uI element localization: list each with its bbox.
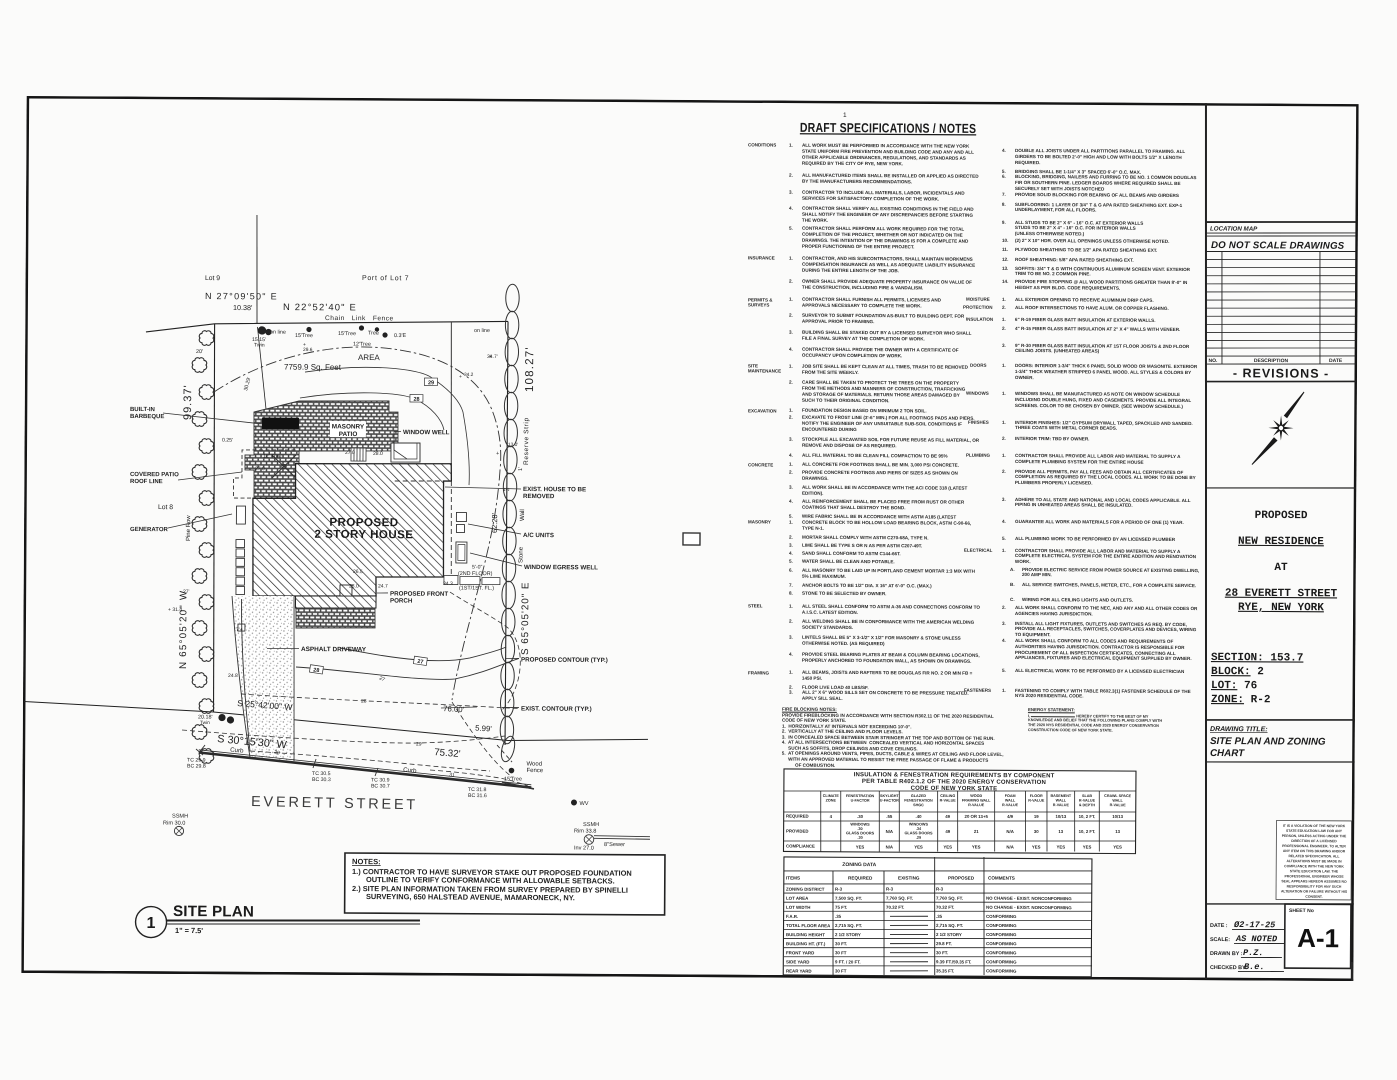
svg-text:30 FT.: 30 FT.: [936, 950, 948, 955]
svg-text:15'Tree: 15'Tree: [295, 333, 313, 339]
svg-text:28 EVERETT STREET: 28 EVERETT STREET: [1225, 588, 1338, 601]
svg-text:R-VALUE: R-VALUE: [968, 803, 985, 807]
svg-text:27: 27: [417, 659, 424, 666]
svg-text:MASONRY: MASONRY: [332, 423, 365, 430]
svg-text:27.0: 27.0: [255, 466, 265, 472]
svg-text:Twin: Twin: [254, 343, 265, 349]
svg-text:CHECKED BY:: CHECKED BY:: [1210, 965, 1247, 971]
svg-text:R-VALUE: R-VALUE: [1110, 803, 1127, 807]
svg-text:2 STORY HOUSE: 2 STORY HOUSE: [314, 529, 413, 542]
svg-text:EXISTING: EXISTING: [898, 875, 920, 880]
svg-text:NO CHANGE - EXIST. NONCONFORMI: NO CHANGE - EXIST. NONCONFORMING: [986, 905, 1072, 911]
svg-text:9 FT. / 20 FT.: 9 FT. / 20 FT.: [835, 959, 861, 964]
svg-text:BUILDING HT. (FT.): BUILDING HT. (FT.): [786, 941, 826, 946]
svg-text:CLIMATE: CLIMATE: [823, 794, 840, 798]
svg-text:U-FACTOR: U-FACTOR: [851, 799, 870, 803]
svg-text:+: +: [459, 374, 462, 380]
svg-text:R-VALUE: R-VALUE: [1079, 799, 1096, 803]
svg-text:ASPHALT DRIVEWAY: ASPHALT DRIVEWAY: [301, 646, 367, 653]
svg-text:R-VALUE: R-VALUE: [940, 799, 957, 803]
svg-text:28.0: 28.0: [349, 584, 359, 590]
svg-text:FLOOR: FLOOR: [1030, 794, 1043, 798]
svg-text:29: 29: [416, 742, 422, 748]
svg-text:75.32': 75.32': [434, 747, 461, 760]
svg-text:CHART: CHART: [1210, 748, 1245, 759]
svg-text:SKYLIGHT: SKYLIGHT: [880, 794, 899, 798]
svg-text:LOCATION MAP: LOCATION MAP: [1210, 225, 1258, 232]
svg-text:1': 1': [518, 467, 524, 471]
svg-text:15'Tree: 15'Tree: [338, 331, 356, 337]
svg-text:AT: AT: [1274, 562, 1288, 574]
svg-text:70.32 FT.: 70.32 FT.: [886, 905, 904, 910]
svg-text:1½: 1½: [503, 486, 510, 492]
svg-text:1: 1: [147, 915, 156, 932]
svg-text:DRAWING TITLE:: DRAWING TITLE:: [1210, 726, 1268, 733]
svg-text:R-3: R-3: [835, 887, 843, 892]
svg-text:A/C UNITS: A/C UNITS: [523, 532, 554, 539]
svg-text:15'Tree: 15'Tree: [504, 776, 522, 782]
svg-text:SSMH: SSMH: [172, 814, 188, 820]
svg-text:.40: .40: [915, 814, 922, 819]
svg-text:CONSENT.: CONSENT.: [1305, 895, 1323, 899]
svg-text:27': 27': [183, 589, 190, 595]
svg-text:N/A: N/A: [1006, 844, 1013, 849]
svg-text:R-3: R-3: [886, 887, 894, 892]
svg-text:STATE EDUCATION LAW. THE: STATE EDUCATION LAW. THE: [1290, 869, 1339, 873]
svg-text:7,760 SQ. FT.: 7,760 SQ. FT.: [886, 896, 913, 901]
svg-text:SIDE YARD: SIDE YARD: [786, 959, 809, 964]
svg-text:0.25': 0.25': [222, 438, 233, 444]
svg-text:FOAM: FOAM: [1005, 794, 1016, 798]
svg-text:F.A.R.: F.A.R.: [786, 914, 798, 919]
svg-text:Lot 9: Lot 9: [205, 275, 220, 282]
svg-text:(2ND FLOOR): (2ND FLOOR): [458, 571, 493, 577]
svg-text:BUILT-IN: BUILT-IN: [130, 407, 155, 413]
svg-text:N/A: N/A: [886, 829, 893, 834]
svg-text:ALTERATION OR FAILURE WITHOUT: ALTERATION OR FAILURE WITHOUT HIS: [1281, 889, 1348, 893]
svg-text:SCALE:: SCALE:: [1210, 937, 1230, 943]
svg-text:STATE EDUCATION LAW FOR ANY: STATE EDUCATION LAW FOR ANY: [1286, 829, 1343, 833]
svg-text:RELATED SPECIFICATION. ALL: RELATED SPECIFICATION. ALL: [1288, 854, 1339, 858]
svg-text:A-1: A-1: [1297, 923, 1339, 953]
svg-text:YES: YES: [914, 844, 923, 849]
svg-text:SSMH: SSMH: [583, 822, 599, 828]
svg-text:Ø2-17-25: Ø2-17-25: [1233, 920, 1276, 930]
svg-text:30: 30: [1034, 829, 1039, 834]
svg-text:GENERATOR: GENERATOR: [130, 527, 168, 533]
svg-text:P.Z.: P.Z.: [1243, 948, 1264, 958]
svg-text:10/13: 10/13: [1056, 814, 1067, 819]
svg-text:WV: WV: [579, 801, 588, 807]
svg-text:10/13: 10/13: [1112, 814, 1123, 819]
svg-text:WINDOW EGRESS WELL: WINDOW EGRESS WELL: [524, 564, 598, 571]
svg-text:10, 2 FT.: 10, 2 FT.: [1079, 814, 1096, 819]
svg-text:SITE PLAN: SITE PLAN: [173, 903, 254, 920]
svg-text:76.00': 76.00': [443, 704, 465, 714]
svg-text:BC 30.7: BC 30.7: [371, 783, 390, 789]
svg-text:Port of Lot 7: Port of Lot 7: [362, 275, 409, 282]
svg-text:.30: .30: [857, 814, 864, 819]
svg-text:108.27': 108.27': [524, 346, 536, 392]
svg-text:75 FT.: 75 FT.: [835, 905, 847, 910]
svg-text:.30: .30: [857, 836, 862, 840]
svg-text:2 1/2 STORY: 2 1/2 STORY: [835, 932, 861, 937]
svg-text:WOOD: WOOD: [970, 794, 982, 798]
svg-text:R-VALUE: R-VALUE: [1002, 803, 1019, 807]
svg-text:YES: YES: [1057, 844, 1066, 849]
svg-text:13: 13: [1058, 829, 1063, 834]
svg-text:R-3: R-3: [936, 887, 944, 892]
svg-text:Curb: Curb: [403, 766, 418, 774]
svg-text:12' Tree: 12' Tree: [263, 453, 282, 459]
svg-text:ZONE: ZONE: [826, 799, 837, 803]
svg-text:PROVIDED: PROVIDED: [786, 828, 808, 833]
svg-text:Chain Link Fence: Chain Link Fence: [325, 315, 394, 322]
svg-text:19: 19: [1034, 814, 1039, 819]
svg-text:N 65°05'20" W: N 65°05'20" W: [178, 590, 189, 669]
svg-text:2,715 SQ. FT.: 2,715 SQ. FT.: [936, 923, 963, 928]
svg-text:BLOCK: 2: BLOCK: 2: [1211, 666, 1264, 678]
svg-text:.29: .29: [916, 836, 921, 840]
svg-text:35.35 FT.: 35.35 FT.: [936, 968, 954, 973]
svg-text:Twin: Twin: [200, 720, 210, 726]
svg-text:on line: on line: [474, 328, 490, 334]
svg-text:WALL: WALL: [1056, 799, 1067, 803]
svg-text:PROPOSED CONTOUR (TYP.): PROPOSED CONTOUR (TYP.): [521, 656, 608, 664]
svg-text:28: 28: [413, 397, 419, 403]
svg-text:FENESTRATION: FENESTRATION: [846, 794, 875, 798]
svg-text:10.38': 10.38': [233, 303, 253, 312]
svg-text:ZONE: R-2: ZONE: R-2: [1211, 694, 1270, 706]
svg-text:ANY ITEM ON THIS DRAWING AND/O: ANY ITEM ON THIS DRAWING AND/OR: [1283, 849, 1346, 853]
svg-text:ZONING DISTRICT: ZONING DISTRICT: [786, 887, 825, 892]
svg-text:CONFORMING: CONFORMING: [986, 941, 1017, 946]
svg-text:9.39 FT./59.35 FT.: 9.39 FT./59.35 FT.: [936, 959, 971, 964]
svg-text:DIRECTION OF A LICENSED: DIRECTION OF A LICENSED: [1291, 839, 1337, 843]
svg-text:BC 29.8: BC 29.8: [187, 764, 206, 770]
svg-text:49: 49: [945, 814, 950, 819]
svg-text:7,760 SQ. FT.: 7,760 SQ. FT.: [936, 896, 963, 901]
svg-text:COMPLIANCE: COMPLIANCE: [786, 843, 815, 848]
svg-text:PROPOSED: PROPOSED: [948, 875, 975, 880]
svg-text:34.2: 34.2: [464, 372, 474, 378]
svg-text:Wall: Wall: [519, 509, 526, 521]
svg-text:24.7: 24.7: [378, 583, 388, 589]
svg-text:5'-0": 5'-0": [472, 564, 483, 570]
svg-text:28: 28: [361, 698, 367, 704]
svg-text:WALL: WALL: [1112, 799, 1123, 803]
svg-text:Rim 33.8: Rim 33.8: [574, 828, 596, 834]
svg-text:CONFORMING: CONFORMING: [986, 914, 1017, 919]
svg-text:R-VALUE: R-VALUE: [1053, 803, 1070, 807]
svg-text:8"Sewer: 8"Sewer: [604, 842, 625, 848]
svg-text:REAR YARD: REAR YARD: [786, 968, 812, 973]
svg-text:20.18': 20.18': [198, 714, 213, 720]
svg-text:27: 27: [378, 675, 386, 683]
svg-text:20': 20': [196, 349, 203, 355]
svg-text:28.0: 28.0: [373, 451, 383, 457]
svg-text:7759.9 Sq. Feet: 7759.9 Sq. Feet: [284, 363, 342, 372]
svg-text:REQUIRED: REQUIRED: [786, 813, 809, 818]
svg-text:Stone: Stone: [518, 546, 525, 563]
svg-text:DESCRIPTION: DESCRIPTION: [1254, 358, 1289, 364]
svg-text:PROFESSIONAL ENGINEER, TO ALTE: PROFESSIONAL ENGINEER, TO ALTER: [1282, 844, 1346, 848]
svg-text:EXIST. CONTOUR (TYP.): EXIST. CONTOUR (TYP.): [521, 705, 592, 712]
svg-text:SITE PLAN AND ZONING: SITE PLAN AND ZONING: [1210, 736, 1326, 748]
svg-text:30 FT: 30 FT: [835, 950, 847, 955]
svg-text:34.3: 34.3: [443, 581, 453, 587]
svg-text:LOT WIDTH: LOT WIDTH: [786, 905, 810, 910]
svg-text:Inv 27.0: Inv 27.0: [574, 845, 594, 851]
svg-text:AS NOTED: AS NOTED: [1235, 934, 1278, 944]
svg-text:IT IS A VIOLATION OF THE NEW Y: IT IS A VIOLATION OF THE NEW YORK: [1283, 824, 1346, 828]
svg-text:CONFORMING: CONFORMING: [986, 950, 1017, 955]
svg-text:30 FT: 30 FT: [835, 968, 847, 973]
svg-text:(1ST/1ST. FL.): (1ST/1ST. FL.): [459, 585, 494, 591]
svg-text:Lot 8: Lot 8: [158, 504, 173, 511]
svg-text:BASEMENT: BASEMENT: [1050, 794, 1071, 798]
svg-text:PATIO: PATIO: [339, 431, 358, 438]
svg-text:13: 13: [1115, 829, 1120, 834]
svg-text:SECTION: 153.7: SECTION: 153.7: [1211, 652, 1303, 665]
svg-text:FRAMING WALL: FRAMING WALL: [962, 798, 991, 802]
svg-text:COMMENTS: COMMENTS: [988, 876, 1015, 881]
svg-text:BARBEQUE: BARBEQUE: [130, 414, 164, 420]
svg-text:NO.: NO.: [1208, 358, 1218, 364]
svg-text:1: 1: [843, 112, 847, 119]
svg-text:2,715 SQ. FT.: 2,715 SQ. FT.: [835, 923, 862, 928]
svg-text:ROOF LINE: ROOF LINE: [130, 479, 163, 485]
svg-text:27.0: 27.0: [345, 450, 355, 456]
svg-text:FRONT YARD: FRONT YARD: [786, 950, 814, 955]
svg-text:.55: .55: [886, 814, 893, 819]
svg-text:PROPOSED: PROPOSED: [329, 517, 398, 529]
svg-text:N/A: N/A: [1006, 829, 1013, 834]
svg-text:24.8: 24.8: [228, 673, 238, 679]
svg-text:2 1/2 STORY: 2 1/2 STORY: [936, 932, 962, 937]
svg-text:1" = 7.5': 1" = 7.5': [175, 926, 203, 935]
svg-text:Curb: Curb: [230, 747, 245, 755]
svg-text:26.5: 26.5: [353, 569, 363, 575]
svg-text:R-VALUE: R-VALUE: [1028, 799, 1045, 803]
svg-text:RYE, NEW YORK: RYE, NEW YORK: [1238, 602, 1324, 615]
svg-text:SLAB: SLAB: [1082, 794, 1092, 798]
svg-text:28: 28: [313, 667, 320, 674]
svg-text:ALTERATIONS MUST BE MADE IN: ALTERATIONS MUST BE MADE IN: [1286, 859, 1342, 863]
svg-text:+: +: [496, 451, 499, 457]
svg-text:10, 2 FT.: 10, 2 FT.: [1079, 829, 1096, 834]
svg-text:- REVISIONS -: - REVISIONS -: [1233, 366, 1329, 381]
svg-text:Tree: Tree: [368, 331, 379, 337]
svg-text:U-FACTOR: U-FACTOR: [880, 799, 899, 803]
svg-text:Fence: Fence: [526, 768, 543, 774]
svg-text:7,500 SQ. FT.: 7,500 SQ. FT.: [835, 896, 862, 901]
svg-text:COMPLIANCE WITH THE NEW YORK: COMPLIANCE WITH THE NEW YORK: [1284, 864, 1344, 868]
svg-text:CEILING: CEILING: [940, 794, 955, 798]
svg-text:CONFORMING: CONFORMING: [986, 959, 1017, 964]
svg-text:PROFESSIONAL ENGINEER WHOSE: PROFESSIONAL ENGINEER WHOSE: [1284, 874, 1344, 878]
svg-text:DO NOT SCALE DRAWINGS: DO NOT SCALE DRAWINGS: [1211, 240, 1345, 252]
svg-text:N/A: N/A: [886, 845, 893, 850]
svg-text:B.e.: B.e.: [1244, 962, 1265, 972]
svg-text:NOTES:: NOTES:: [352, 857, 381, 866]
svg-text:CONFORMING: CONFORMING: [986, 932, 1017, 937]
svg-text:CONFORMING: CONFORMING: [986, 968, 1017, 973]
svg-text:Pine Row: Pine Row: [186, 515, 192, 541]
svg-text:ZONING DATA: ZONING DATA: [842, 862, 876, 868]
svg-text:SHGC: SHGC: [913, 803, 924, 807]
svg-text:AREA: AREA: [358, 353, 381, 362]
svg-text:20 OR 13+5: 20 OR 13+5: [965, 814, 989, 819]
svg-text:21: 21: [974, 829, 979, 834]
svg-text:Wood: Wood: [526, 762, 542, 768]
svg-text:COVERED PATIO: COVERED PATIO: [130, 472, 179, 478]
svg-text:FENESTRATION: FENESTRATION: [904, 799, 933, 803]
svg-text:ITEMS: ITEMS: [786, 875, 800, 880]
svg-text:& DEPTH: & DEPTH: [1079, 803, 1096, 807]
svg-text:WALL: WALL: [1005, 799, 1016, 803]
svg-text:CRAWL SPACE: CRAWL SPACE: [1104, 794, 1131, 798]
svg-text:13.0': 13.0': [508, 442, 518, 448]
svg-text:YES: YES: [1083, 845, 1092, 850]
svg-text:YES: YES: [943, 844, 952, 849]
svg-text:SEAL APPEARS HEREON ASSUMES NO: SEAL APPEARS HEREON ASSUMES NO: [1281, 879, 1347, 883]
svg-text:30 FT.: 30 FT.: [835, 941, 847, 946]
svg-text:12'Tree: 12'Tree: [353, 342, 371, 348]
svg-text:PERSON, UNLESS ACTING UNDER TH: PERSON, UNLESS ACTING UNDER THE: [1282, 834, 1347, 838]
svg-text:GLAZED: GLAZED: [911, 794, 927, 798]
svg-text:RESPONSIBILITY FOR ANY SUCH: RESPONSIBILITY FOR ANY SUCH: [1287, 884, 1342, 888]
svg-text:4/9: 4/9: [1007, 814, 1014, 819]
svg-text:Rim 30.0: Rim 30.0: [163, 820, 185, 826]
svg-text:PROPOSED: PROPOSED: [1255, 510, 1308, 522]
svg-text:BUILDING HEIGHT: BUILDING HEIGHT: [786, 932, 825, 937]
svg-text:N 22°52'40" E: N 22°52'40" E: [283, 301, 357, 312]
svg-text:29.8 FT.: 29.8 FT.: [936, 941, 952, 946]
svg-text:DATE :: DATE :: [1210, 923, 1228, 929]
svg-text:49: 49: [945, 829, 950, 834]
svg-text:EVERETT STREET: EVERETT STREET: [251, 794, 418, 813]
svg-text:S 65°05'20" E: S 65°05'20" E: [520, 581, 531, 655]
svg-text:SURVEYING, 650 HALSTEAD AVENUE: SURVEYING, 650 HALSTEAD AVENUE, MAMARONE…: [366, 892, 575, 902]
svg-text:.35: .35: [936, 914, 943, 919]
svg-text:99.37': 99.37': [182, 384, 194, 420]
svg-text:N 27°09'50" E: N 27°09'50" E: [205, 291, 278, 301]
svg-text:CONFORMING: CONFORMING: [986, 923, 1017, 928]
svg-text:29: 29: [428, 380, 434, 386]
svg-text:YES: YES: [1113, 844, 1122, 849]
svg-text:DATE: DATE: [1329, 358, 1343, 364]
svg-text:+ 31.4: + 31.4: [168, 607, 182, 613]
svg-text:LOT AREA: LOT AREA: [786, 896, 809, 901]
svg-text:WINDOW WELL: WINDOW WELL: [403, 429, 450, 436]
svg-text:YES: YES: [972, 844, 981, 849]
svg-text:31: 31: [449, 772, 456, 779]
svg-text:YES: YES: [1032, 844, 1041, 849]
svg-text:REMOVED: REMOVED: [523, 493, 555, 500]
svg-text:BC 31.6: BC 31.6: [468, 793, 487, 799]
svg-text:29.6: 29.6: [303, 347, 313, 353]
svg-text:0.3'E: 0.3'E: [394, 333, 407, 339]
svg-text:SHEET No: SHEET No: [1289, 908, 1314, 914]
svg-text:70.32 FT.: 70.32 FT.: [936, 905, 954, 910]
svg-text:Reserve Strip: Reserve Strip: [523, 417, 530, 465]
svg-text:REQUIRED: REQUIRED: [848, 875, 873, 880]
svg-text:NO CHANGE - EXIST. NONCONFORMI: NO CHANGE - EXIST. NONCONFORMING: [986, 896, 1072, 902]
svg-text:PER TABLE R402.1.2 OF THE 2020: PER TABLE R402.1.2 OF THE 2020 ENERGY CO…: [862, 779, 1046, 786]
svg-text:+: +: [489, 354, 492, 360]
svg-text:BC 30.3: BC 30.3: [312, 777, 331, 783]
svg-text:30.29': 30.29': [243, 376, 252, 391]
svg-text:on line: on line: [270, 330, 286, 336]
svg-text:5.99': 5.99': [475, 724, 493, 734]
svg-text:YES: YES: [856, 845, 865, 850]
svg-text:TOTAL FLOOR AREA: TOTAL FLOOR AREA: [786, 923, 831, 928]
svg-text:NEW RESIDENCE: NEW RESIDENCE: [1238, 536, 1324, 549]
svg-text:.35: .35: [835, 914, 842, 919]
svg-text:DRAWN BY :: DRAWN BY :: [1210, 951, 1243, 957]
svg-text:7'±: 7'±: [236, 627, 243, 633]
svg-text:PORCH: PORCH: [390, 597, 413, 604]
svg-text:LOT: 76: LOT: 76: [1211, 680, 1257, 692]
